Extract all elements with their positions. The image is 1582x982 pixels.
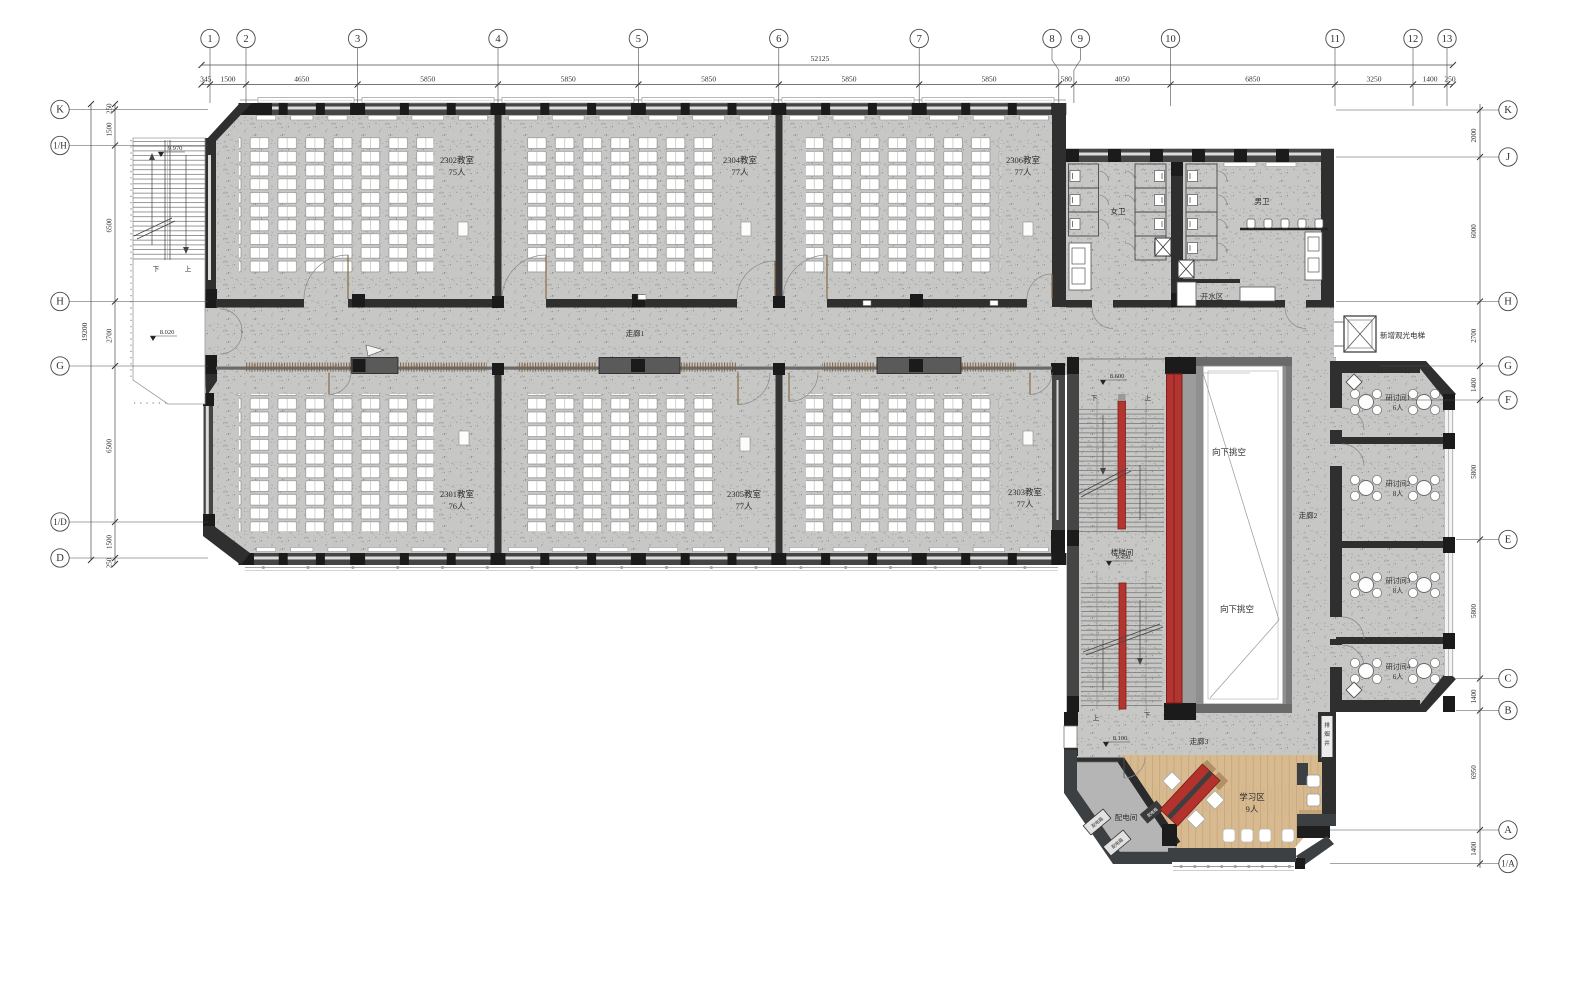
svg-text:10: 10 [1165, 34, 1176, 45]
svg-text:6500: 6500 [106, 218, 114, 233]
svg-text:8.100: 8.100 [1113, 735, 1128, 742]
svg-text:13: 13 [1442, 34, 1453, 45]
svg-text:2000: 2000 [1470, 128, 1478, 143]
svg-text:11: 11 [1330, 34, 1340, 45]
svg-text:2700: 2700 [1470, 328, 1478, 343]
svg-text:开水区: 开水区 [1201, 291, 1224, 301]
svg-text:J: J [1506, 152, 1510, 163]
svg-text:研讨间4: 研讨间4 [1386, 662, 1411, 671]
svg-text:上: 上 [1093, 713, 1100, 722]
svg-text:下: 下 [153, 265, 160, 273]
svg-text:3250: 3250 [1367, 75, 1382, 84]
svg-text:5850: 5850 [701, 75, 716, 84]
svg-text:77人: 77人 [1016, 499, 1034, 509]
svg-text:250: 250 [1444, 75, 1456, 84]
svg-text:77人: 77人 [1014, 167, 1032, 177]
svg-text:6850: 6850 [1245, 75, 1260, 84]
svg-text:向下挑空: 向下挑空 [1212, 447, 1246, 457]
svg-text:77人: 77人 [731, 167, 749, 177]
svg-text:1400: 1400 [1470, 378, 1478, 393]
svg-text:走廊2: 走廊2 [1299, 510, 1318, 520]
svg-text:250: 250 [106, 557, 114, 568]
svg-text:75人: 75人 [448, 167, 466, 177]
svg-text:5850: 5850 [842, 75, 857, 84]
svg-text:2302教室: 2302教室 [440, 155, 475, 165]
svg-text:走廊3: 走廊3 [1190, 736, 1209, 746]
svg-text:1/D: 1/D [53, 517, 67, 527]
svg-text:配电间: 配电间 [1115, 812, 1138, 822]
svg-text:F: F [1505, 395, 1511, 406]
svg-text:上: 上 [1145, 393, 1152, 402]
svg-text:研讨间1: 研讨间1 [1386, 393, 1411, 402]
svg-text:男卫: 男卫 [1255, 197, 1271, 206]
svg-text:K: K [56, 105, 64, 116]
svg-text:2303教室: 2303教室 [1008, 487, 1043, 497]
svg-text:D: D [56, 553, 64, 564]
svg-text:1400: 1400 [1470, 841, 1478, 856]
svg-text:1400: 1400 [1470, 689, 1478, 704]
svg-text:1: 1 [207, 34, 212, 45]
svg-text:C: C [1504, 674, 1511, 685]
svg-text:上: 上 [185, 264, 192, 273]
svg-text:52125: 52125 [811, 54, 830, 63]
svg-text:G: G [56, 361, 64, 372]
svg-text:8.600: 8.600 [1110, 373, 1125, 380]
svg-text:77人: 77人 [735, 501, 753, 511]
svg-text:4: 4 [495, 34, 501, 45]
svg-text:2304教室: 2304教室 [723, 155, 758, 165]
svg-text:女卫: 女卫 [1111, 206, 1127, 216]
svg-text:9: 9 [1078, 34, 1083, 45]
svg-text:新增观光电梯: 新增观光电梯 [1380, 330, 1425, 340]
svg-text:3: 3 [355, 34, 360, 45]
svg-text:1400: 1400 [1423, 75, 1438, 84]
svg-text:9人: 9人 [1246, 804, 1259, 814]
svg-text:4650: 4650 [294, 75, 309, 84]
svg-text:5850: 5850 [982, 75, 997, 84]
svg-text:4050: 4050 [1115, 75, 1130, 84]
svg-text:12: 12 [1408, 34, 1419, 45]
svg-text:5850: 5850 [561, 75, 576, 84]
svg-text:6000: 6000 [1470, 224, 1478, 239]
svg-text:H: H [56, 297, 64, 308]
svg-text:5800: 5800 [1470, 604, 1478, 619]
svg-text:A: A [1504, 825, 1512, 836]
svg-text:5800: 5800 [1470, 464, 1478, 479]
svg-text:5850: 5850 [420, 75, 435, 84]
svg-text:排: 排 [1324, 721, 1330, 729]
svg-text:研讨间3: 研讨间3 [1386, 576, 1411, 585]
svg-text:250: 250 [106, 103, 114, 114]
svg-text:2700: 2700 [106, 328, 114, 343]
svg-text:580: 580 [1061, 75, 1073, 84]
svg-text:2301教室: 2301教室 [440, 489, 475, 499]
svg-text:5: 5 [636, 34, 641, 45]
svg-text:研讨间2: 研讨间2 [1386, 479, 1411, 488]
svg-text:8人: 8人 [1393, 587, 1404, 595]
svg-text:6500: 6500 [106, 439, 114, 454]
svg-text:下: 下 [1144, 711, 1151, 719]
svg-text:学习区: 学习区 [1239, 792, 1265, 802]
svg-text:2306教室: 2306教室 [1006, 155, 1041, 165]
svg-text:7: 7 [917, 34, 922, 45]
svg-text:1500: 1500 [106, 535, 114, 550]
svg-text:19200: 19200 [80, 322, 89, 341]
svg-text:B: B [1504, 706, 1511, 717]
svg-text:9.970: 9.970 [168, 145, 183, 152]
svg-text:6人: 6人 [1393, 673, 1404, 681]
svg-text:1500: 1500 [221, 75, 236, 84]
svg-text:H: H [1504, 297, 1512, 308]
svg-text:向下挑空: 向下挑空 [1220, 604, 1254, 614]
svg-text:8: 8 [1049, 34, 1054, 45]
svg-text:G: G [1504, 361, 1512, 372]
svg-text:井: 井 [1324, 739, 1330, 747]
svg-text:下: 下 [1091, 394, 1098, 402]
svg-text:76人: 76人 [448, 501, 466, 511]
svg-text:1/H: 1/H [53, 141, 67, 151]
svg-text:走廊1: 走廊1 [626, 328, 645, 338]
svg-text:K: K [1504, 105, 1512, 116]
svg-text:烟: 烟 [1324, 730, 1330, 738]
svg-text:6人: 6人 [1393, 404, 1404, 412]
svg-text:8人: 8人 [1393, 490, 1404, 498]
svg-text:2305教室: 2305教室 [727, 489, 762, 499]
svg-text:E: E [1505, 535, 1511, 546]
svg-text:9.450: 9.450 [1116, 554, 1131, 561]
svg-text:1/A: 1/A [1501, 859, 1515, 869]
svg-text:2: 2 [243, 34, 248, 45]
svg-text:1500: 1500 [106, 122, 114, 137]
svg-text:6: 6 [776, 34, 781, 45]
svg-text:8.020: 8.020 [160, 329, 175, 336]
svg-text:6950: 6950 [1470, 765, 1478, 780]
